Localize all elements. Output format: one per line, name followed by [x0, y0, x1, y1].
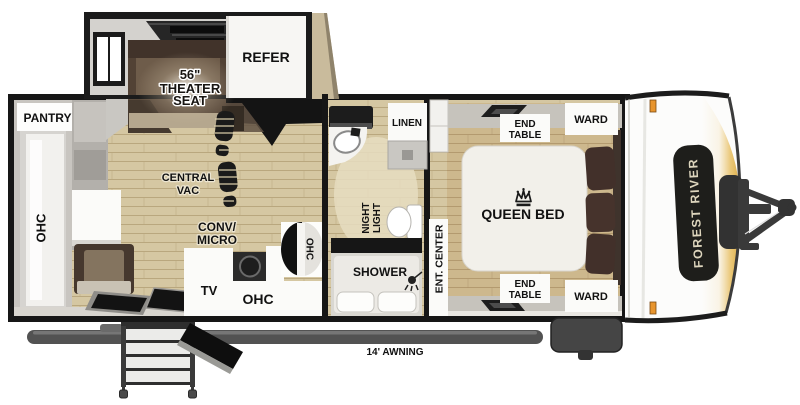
svg-text:OHC: OHC	[242, 291, 273, 307]
svg-text:LINEN: LINEN	[392, 118, 422, 129]
svg-text:REFER: REFER	[242, 49, 289, 65]
svg-text:ENT. CENTER: ENT. CENTER	[434, 224, 446, 293]
svg-text:TABLE: TABLE	[509, 130, 542, 141]
svg-text:WARD: WARD	[574, 114, 608, 126]
svg-text:OHC: OHC	[303, 238, 314, 260]
svg-text:WARD: WARD	[574, 291, 608, 303]
svg-text:14' AWNING: 14' AWNING	[366, 347, 423, 358]
svg-text:SEAT: SEAT	[173, 93, 207, 108]
svg-text:NIGHT: NIGHT	[361, 202, 372, 233]
svg-text:END: END	[514, 279, 535, 290]
svg-text:LIGHT: LIGHT	[372, 203, 383, 233]
svg-text:OHC: OHC	[33, 213, 48, 243]
svg-text:END: END	[514, 119, 535, 130]
svg-text:56": 56"	[180, 67, 201, 82]
svg-text:TABLE: TABLE	[509, 290, 542, 301]
svg-text:VAC: VAC	[177, 185, 199, 197]
svg-text:CONV/: CONV/	[198, 220, 237, 234]
svg-text:PANTRY: PANTRY	[24, 111, 72, 125]
svg-text:SHOWER: SHOWER	[353, 265, 407, 279]
svg-text:CENTRAL: CENTRAL	[162, 172, 215, 184]
svg-text:QUEEN BED: QUEEN BED	[481, 206, 564, 222]
svg-text:MICRO: MICRO	[197, 233, 237, 247]
svg-text:TV: TV	[201, 283, 218, 298]
